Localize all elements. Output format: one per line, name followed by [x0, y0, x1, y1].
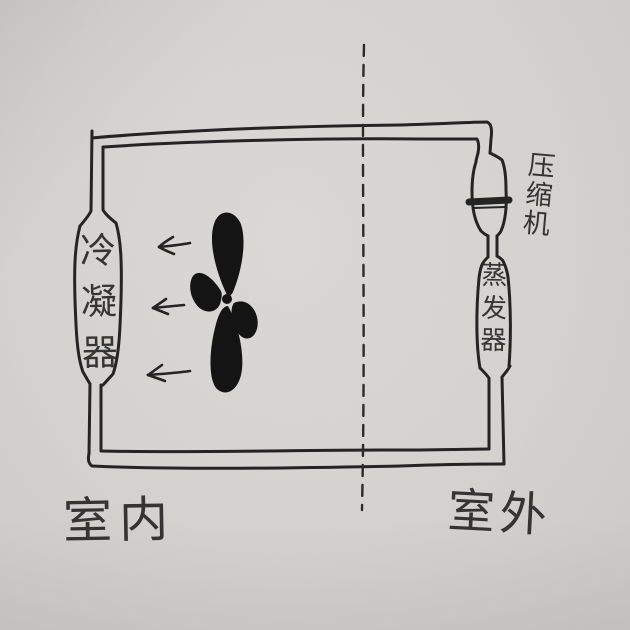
condenser-down-pipe-left	[89, 384, 90, 454]
fan-blade-top	[212, 212, 244, 296]
airflow-arrows	[148, 237, 190, 381]
evaporator-down-pipe-right	[502, 366, 510, 464]
compressor-left-edge	[472, 153, 488, 236]
top-pipe-inner-line	[104, 139, 479, 153]
left-arrow-icon	[148, 365, 190, 381]
compressor-right-edge	[490, 153, 506, 236]
compressor-outline	[469, 153, 509, 236]
top-pipe-outer-line	[92, 122, 492, 153]
bottom-pipe-inner-line	[101, 449, 489, 452]
fan-hub	[222, 294, 232, 304]
left-pipe-inner-line	[103, 147, 116, 223]
condenser-label: 冷凝器	[75, 226, 124, 380]
compressor-piston-band-underline	[473, 207, 505, 208]
hand-drawn-ac-diagram: 冷凝器 压缩机 蒸发器 室内 室外	[0, 0, 630, 630]
bottom-pipe-outer-line	[88, 453, 504, 468]
fan-propeller-icon	[190, 212, 258, 392]
evaporator-down-pipe-left	[480, 368, 489, 449]
indoor-region-label: 室内	[62, 480, 175, 553]
evaporator-label: 蒸发器	[477, 260, 511, 358]
left-arrow-icon	[153, 299, 184, 314]
compressor-label: 压缩机	[517, 151, 560, 241]
left-pipe-outer-line	[80, 131, 92, 226]
compressor-piston-band	[469, 200, 509, 202]
refrigerant-loop-pipes	[80, 122, 510, 468]
dashed-partition-line	[362, 45, 364, 510]
fan-blade-left	[190, 273, 222, 312]
left-arrow-icon	[159, 237, 190, 254]
outdoor-region-label: 室外	[446, 471, 553, 545]
